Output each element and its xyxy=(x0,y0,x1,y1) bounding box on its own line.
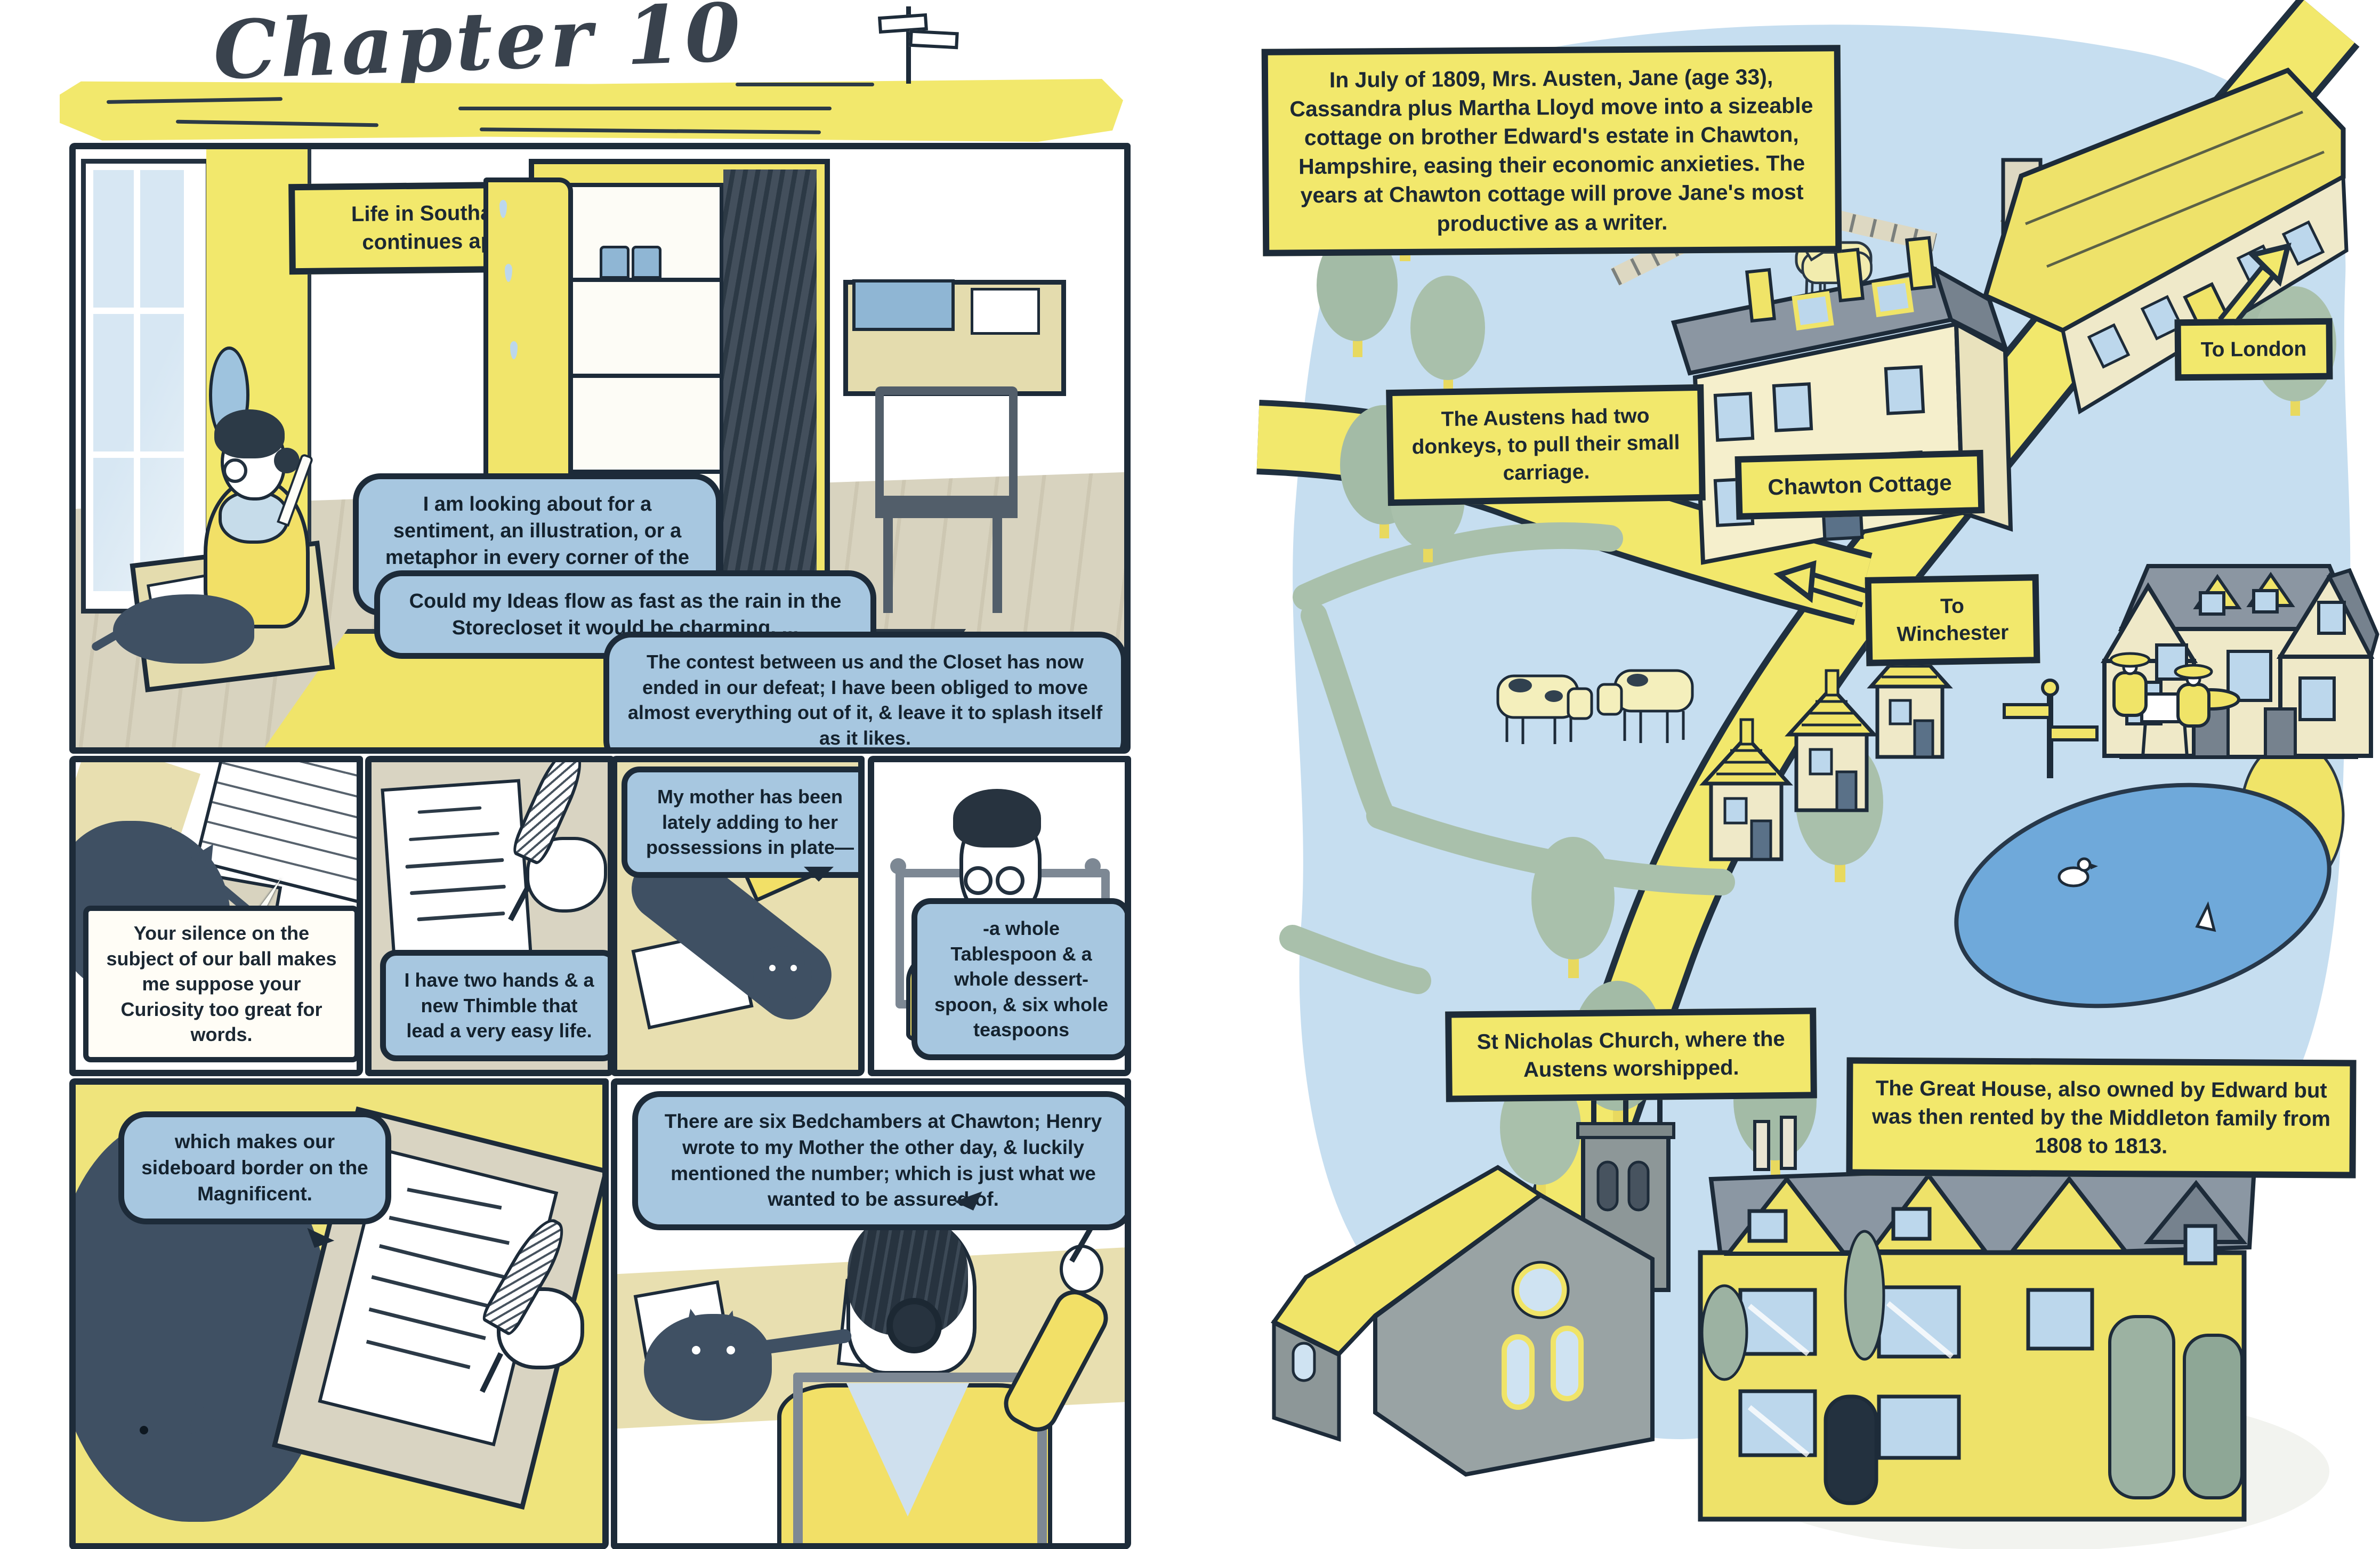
map-label-great-house: The Great House, also owned by Edward bu… xyxy=(1846,1057,2356,1178)
person-icon xyxy=(2175,665,2212,726)
map-label-church: St Nicholas Church, where the Austens wo… xyxy=(1445,1007,1817,1102)
hair xyxy=(953,789,1041,848)
panel-5: -a whole Tablespoon & a whole dessert-sp… xyxy=(868,756,1131,1076)
map-intro-caption: In July of 1809, Mrs. Austen, Jane (age … xyxy=(1262,45,1842,256)
banner-scribble xyxy=(458,107,832,110)
speech-bubble: I have two hands & a new Thimble that le… xyxy=(380,950,614,1061)
cat-eye xyxy=(769,965,776,971)
map-label-chawton-cottage: Chawton Cottage xyxy=(1735,450,1985,520)
side-table xyxy=(843,280,1066,396)
speech-bubble: which makes our sideboard border on the … xyxy=(118,1111,391,1224)
narration-caption: Your silence on the subject of our ball … xyxy=(83,906,360,1062)
person-icon xyxy=(2111,654,2149,715)
panel-1: Life in Southampton continues apace... xyxy=(69,143,1131,754)
glasses xyxy=(964,866,993,895)
banner-scribble xyxy=(736,83,874,86)
panel-2: Your silence on the subject of our ball … xyxy=(69,756,363,1076)
speech-bubble: My mother has been lately adding to her … xyxy=(622,767,865,878)
map-label-to-london: To London xyxy=(2175,318,2333,381)
boots xyxy=(600,246,630,279)
chair xyxy=(875,386,1018,513)
panel-4: My mother has been lately adding to her … xyxy=(611,756,865,1076)
speech-bubble: The contest between us and the Closet ha… xyxy=(603,632,1127,754)
chair-seat xyxy=(875,496,1018,518)
hair xyxy=(214,409,285,458)
cat-eye xyxy=(790,965,797,971)
chapter-banner xyxy=(60,79,1123,142)
speech-bubble: -a whole Tablespoon & a whole dessert-sp… xyxy=(911,898,1131,1060)
hair-bun xyxy=(886,1298,942,1353)
towel xyxy=(852,279,955,331)
comic-spread: Chapter 10 Life in Southampton continues… xyxy=(0,0,2380,1549)
hand xyxy=(1060,1245,1103,1294)
map-label-donkeys: The Austens had two donkeys, to pull the… xyxy=(1386,384,1706,506)
paper xyxy=(971,288,1040,335)
panel-7: There are six Bedchambers at Chawton; He… xyxy=(611,1078,1131,1549)
wardrobe-shadow-door xyxy=(723,170,817,604)
map-label-to-winchester: To Winchester xyxy=(1865,574,2040,666)
panel-6: which makes our sideboard border on the … xyxy=(69,1078,609,1549)
cat-eye xyxy=(140,1426,148,1434)
signpost-arm xyxy=(909,30,959,50)
cat xyxy=(644,1314,772,1421)
glasses xyxy=(223,458,247,483)
speech-bubble: There are six Bedchambers at Chawton; He… xyxy=(632,1091,1131,1230)
window xyxy=(81,159,211,614)
glasses xyxy=(996,866,1024,895)
cat-eye xyxy=(727,1346,735,1354)
panel-3: I have two hands & a new Thimble that le… xyxy=(365,756,614,1076)
cat-eye xyxy=(692,1346,700,1354)
